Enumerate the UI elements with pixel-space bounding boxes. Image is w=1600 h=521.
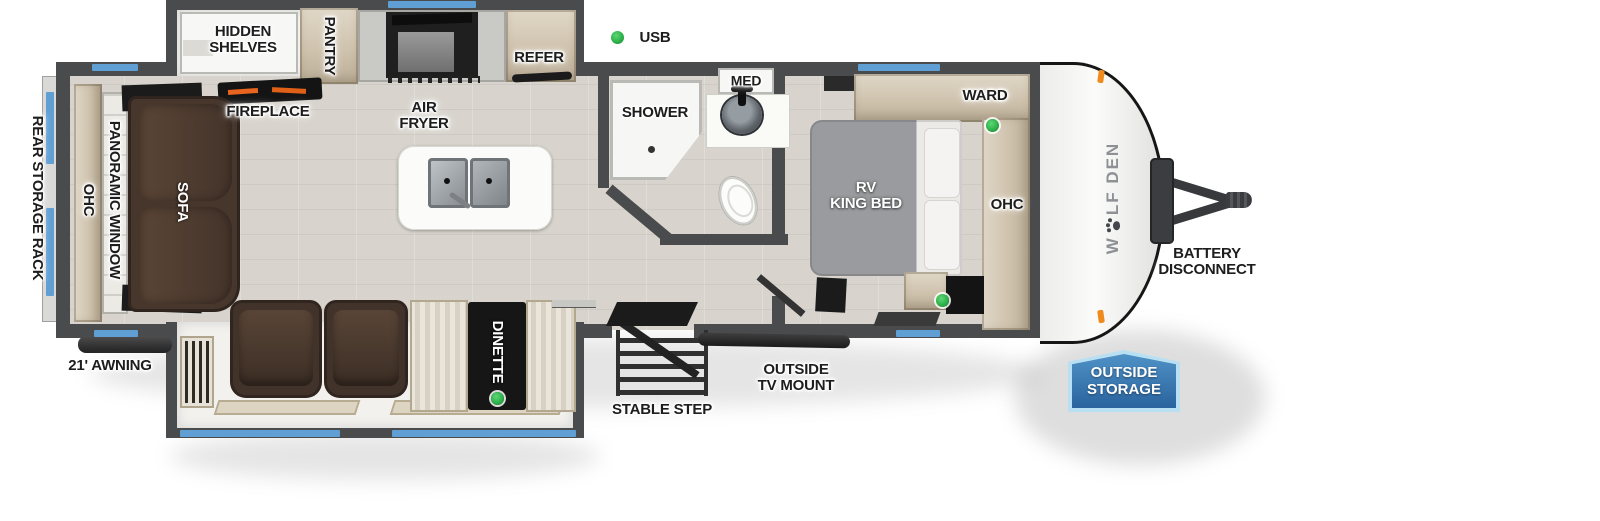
battery-disconnect-box bbox=[1150, 158, 1174, 244]
entry-door-mat bbox=[606, 302, 698, 326]
rv-king-bed-label: RV KING BED bbox=[830, 180, 902, 212]
rear-storage-rack-label: REAR STORAGE RACK bbox=[29, 116, 45, 281]
seat-cushion bbox=[333, 310, 399, 386]
sink-drain bbox=[486, 178, 492, 184]
hitch-arm bbox=[1165, 199, 1231, 227]
usb-label: USB bbox=[639, 30, 670, 46]
ground-shadow-slide bbox=[170, 432, 600, 480]
awning-arm-bracket bbox=[552, 300, 596, 307]
dinette-label: DINETTE bbox=[489, 321, 505, 384]
fireplace-label: FIREPLACE bbox=[226, 104, 309, 120]
dinette-slide-window bbox=[392, 430, 576, 437]
paw-print-icon bbox=[1106, 218, 1121, 233]
theater-seat bbox=[324, 300, 408, 398]
battery-disconnect-label: BATTERY DISCONNECT bbox=[1158, 246, 1255, 278]
stable-step-label: STABLE STEP bbox=[612, 402, 712, 418]
awning-label: 21' AWNING bbox=[68, 358, 152, 374]
hitch-coupler bbox=[1226, 192, 1252, 208]
sofa-label: SOFA bbox=[174, 182, 190, 222]
window-bedroom-bottom bbox=[896, 330, 940, 337]
shower-label: SHOWER bbox=[622, 105, 688, 121]
usb-indicator-dot bbox=[611, 31, 624, 44]
stable-step-ladder bbox=[616, 330, 708, 396]
bed-pillow bbox=[924, 200, 960, 270]
med-label: MED bbox=[731, 73, 762, 88]
ward-label: WARD bbox=[962, 88, 1007, 104]
bath-wall-left bbox=[598, 76, 609, 188]
bedroom-step-mat bbox=[873, 312, 940, 326]
refer-label: REFER bbox=[514, 50, 564, 66]
seat-cushion bbox=[239, 310, 313, 386]
kitchen-slide-wall-left bbox=[166, 0, 177, 76]
rear-ohc-label: OHC bbox=[80, 184, 96, 217]
shower-drain bbox=[648, 146, 655, 153]
kitchen-slide-window bbox=[388, 1, 476, 8]
brand-prefix: W bbox=[1103, 236, 1123, 254]
rear-wall bbox=[56, 62, 70, 338]
outside-tv-mount-label: OUTSIDE TV MOUNT bbox=[758, 362, 835, 394]
dinette-bench bbox=[526, 300, 576, 412]
window-bedroom-top bbox=[858, 64, 940, 71]
range-knobs bbox=[388, 76, 480, 83]
outside-storage-badge: OUTSIDE STORAGE bbox=[1068, 350, 1180, 412]
rear-rack-bar bbox=[46, 208, 54, 296]
outside-tv-mount-bar bbox=[698, 333, 850, 349]
slide-fireplace-panel bbox=[180, 336, 214, 408]
brand-logo: WLF DEN bbox=[1103, 142, 1123, 254]
outside-storage-badge-inner: OUTSIDE STORAGE bbox=[1072, 354, 1176, 408]
bedroom-ohc-label: OHC bbox=[991, 197, 1024, 213]
dinette-slide-window bbox=[180, 430, 340, 437]
slide-fireplace-louvers bbox=[185, 341, 209, 403]
dinette-bench bbox=[410, 300, 468, 412]
brand-suffix: LF DEN bbox=[1103, 142, 1123, 215]
outside-storage-label: OUTSIDE STORAGE bbox=[1087, 364, 1161, 399]
window-top-left bbox=[92, 64, 138, 71]
rear-rack-bar bbox=[46, 92, 54, 164]
bed-pillow bbox=[924, 128, 960, 198]
pantry-label: PANTRY bbox=[321, 17, 337, 76]
footrest-mat bbox=[214, 400, 361, 415]
usb-indicator-dot bbox=[491, 392, 504, 405]
usb-indicator-dot bbox=[936, 294, 949, 307]
bedroom-dresser bbox=[946, 276, 984, 314]
air-fryer-label: AIR FRYER bbox=[399, 100, 448, 132]
bedroom-ohc-cabinet bbox=[982, 118, 1030, 330]
window-bottom-left bbox=[94, 330, 138, 337]
hidden-shelves-label: HIDDEN SHELVES bbox=[209, 24, 277, 56]
floorplan-canvas: REAR STORAGE RACK HIDDEN SHELVES PANTRY … bbox=[0, 0, 1600, 521]
panoramic-window-label: PANORAMIC WINDOW bbox=[106, 121, 122, 279]
range-front bbox=[398, 32, 454, 72]
usb-indicator-dot bbox=[986, 119, 999, 132]
awning-roller bbox=[78, 336, 172, 353]
kitchen-slide-wall-top bbox=[166, 0, 584, 10]
bedroom-door-cabinet bbox=[815, 277, 847, 313]
sink-drain bbox=[444, 178, 450, 184]
theater-seat bbox=[230, 300, 322, 398]
